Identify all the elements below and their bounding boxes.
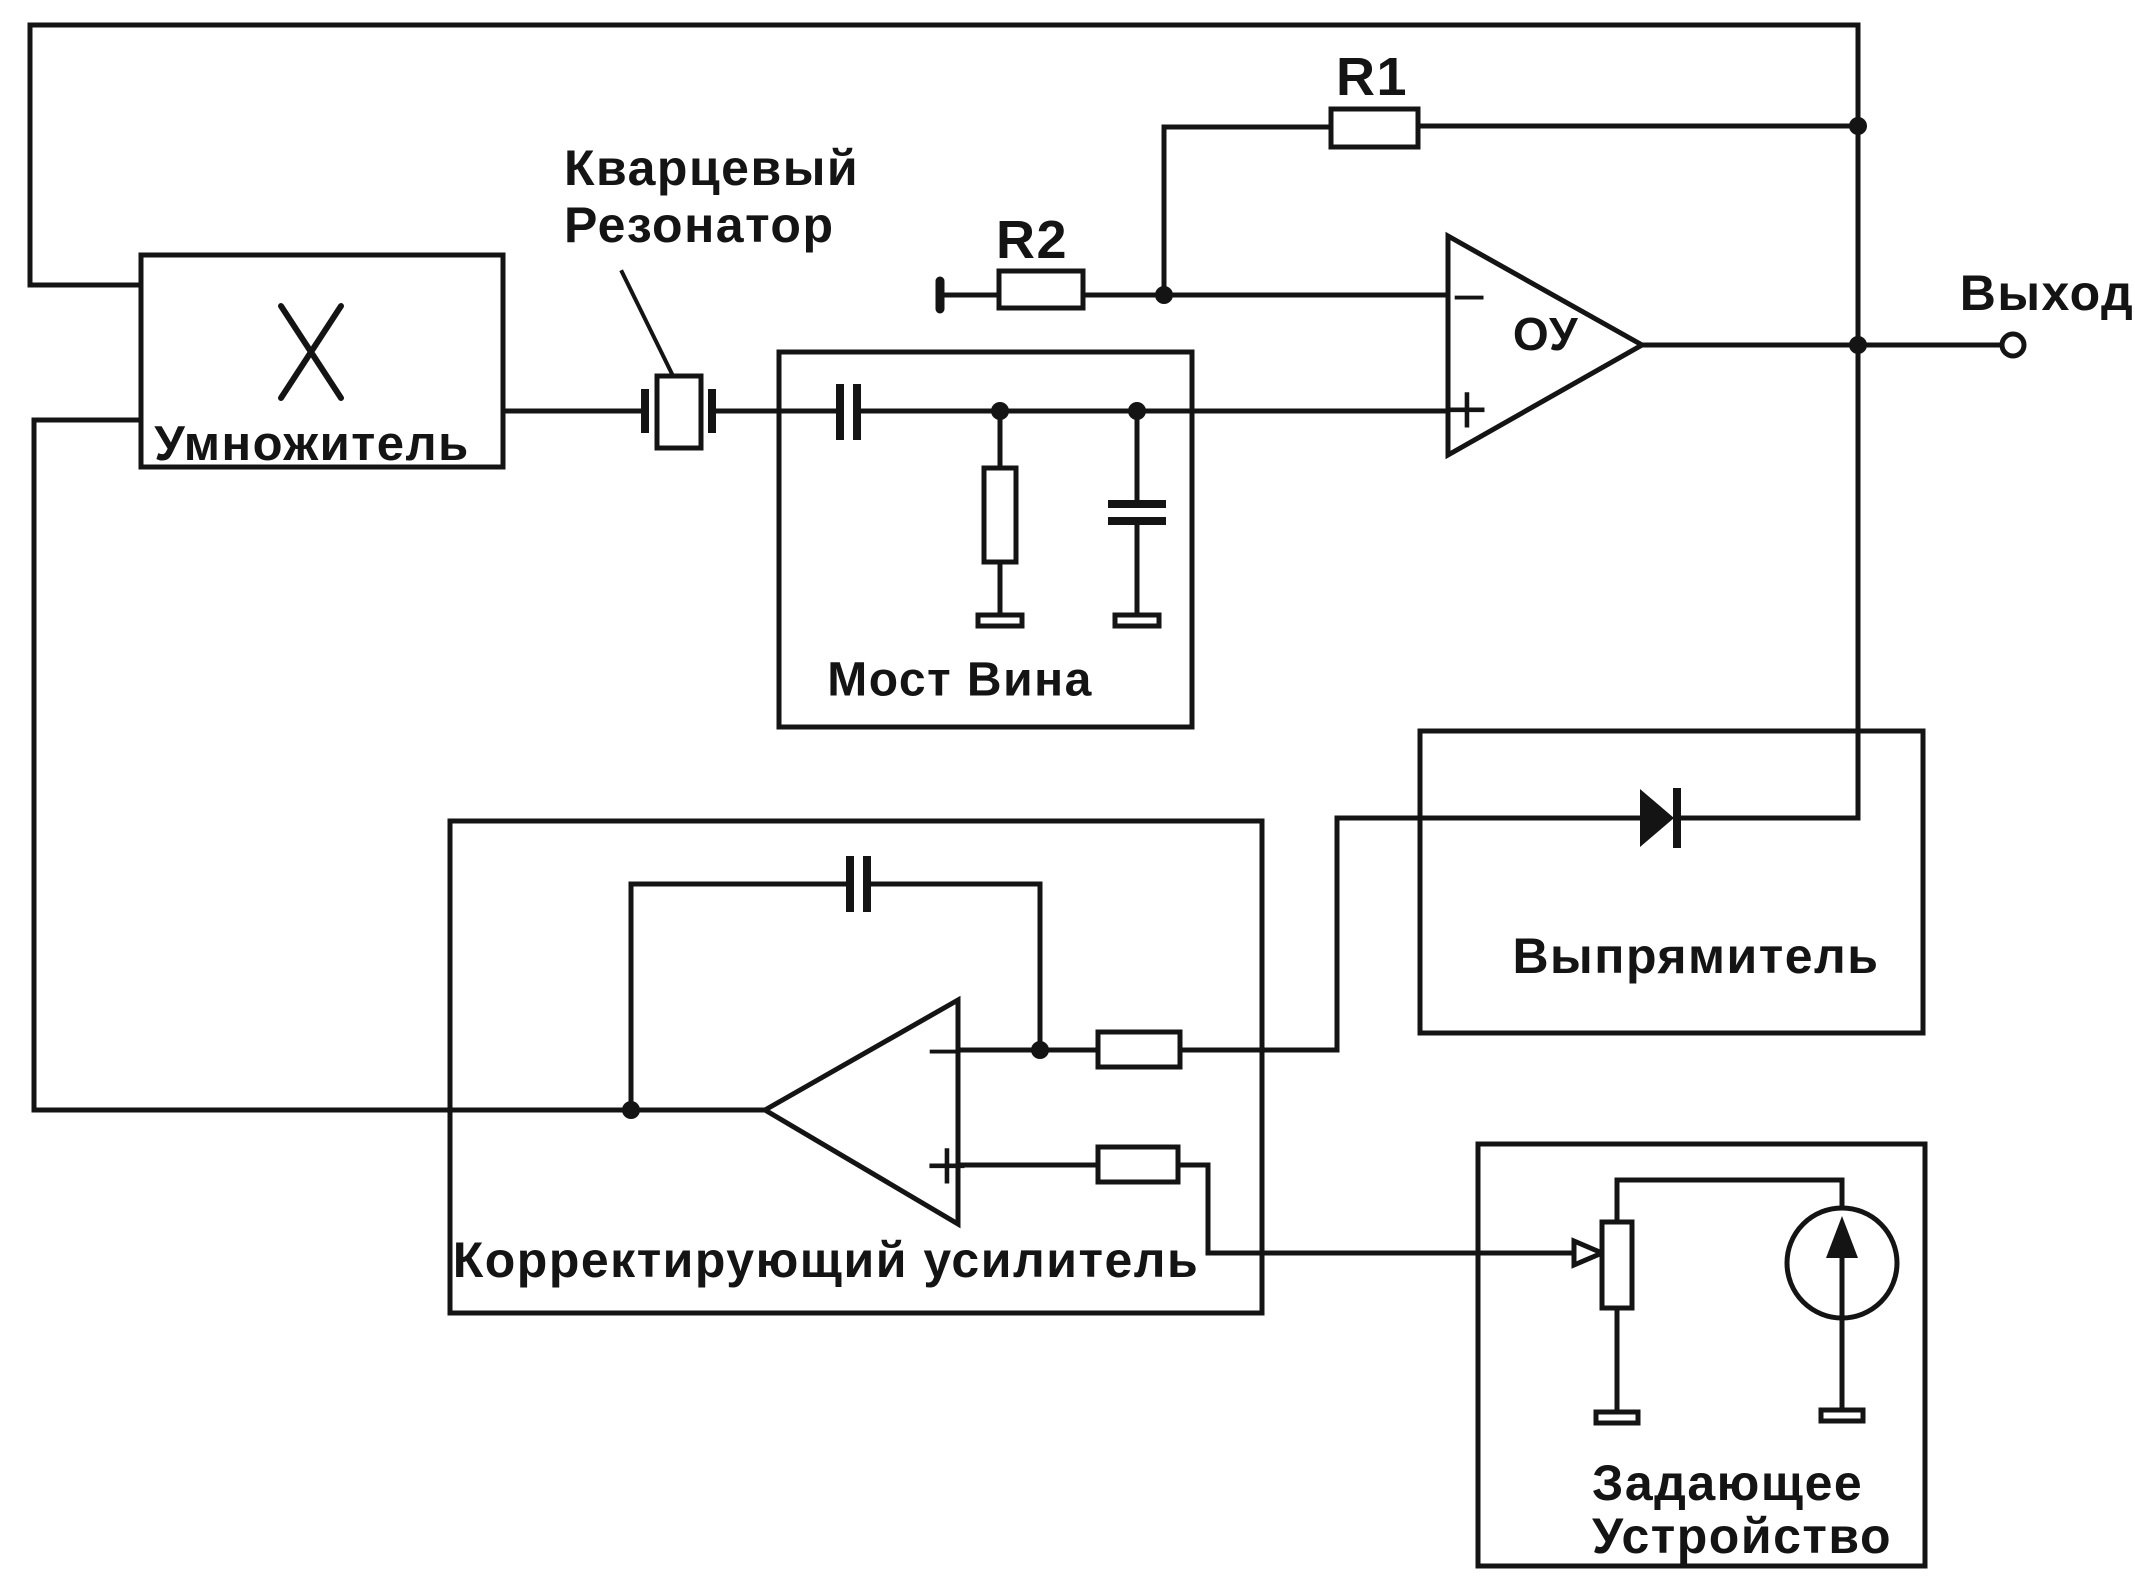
rectifier-label: Выпрямитель bbox=[1512, 928, 1879, 984]
main-opamp: − + ОУ bbox=[1444, 236, 1642, 455]
wire-corr-to-setting-device bbox=[1178, 1165, 1574, 1253]
quartz-label-line2: Резонатор bbox=[564, 197, 834, 253]
ground-icon bbox=[1821, 1410, 1863, 1421]
wire-corr-cap-left bbox=[631, 884, 850, 1110]
output-terminal-icon bbox=[2002, 334, 2024, 356]
left-feedback-wire bbox=[34, 420, 765, 1110]
opamp-plus-sign: + bbox=[1444, 377, 1491, 442]
wien-bridge-block: Мост Вина bbox=[779, 352, 1448, 727]
schematic-page: Умножитель Кварцевый Резонатор Мост Вина bbox=[0, 0, 2135, 1583]
junction-dot bbox=[622, 1101, 640, 1119]
junction-dot bbox=[1849, 117, 1867, 135]
corr-noninverting-resistor-icon bbox=[1098, 1147, 1178, 1182]
corr-opamp-minus-sign: − bbox=[925, 1023, 964, 1077]
corr-inverting-resistor-icon bbox=[1098, 1032, 1180, 1067]
rectifier-block: Выпрямитель bbox=[1337, 731, 1923, 1050]
quartz-label-line1: Кварцевый bbox=[564, 140, 859, 196]
potentiometer-icon bbox=[1602, 1222, 1632, 1308]
setting-device-label-line2: Устройство bbox=[1592, 1508, 1892, 1564]
corr-opamp-plus-sign: + bbox=[924, 1133, 971, 1198]
junction-dot bbox=[1849, 336, 1867, 354]
current-source-arrow-icon bbox=[1826, 1216, 1858, 1258]
diode-icon bbox=[1640, 789, 1674, 847]
setting-device-block: Задающее Устройство bbox=[1478, 1144, 1925, 1566]
r1-resistor-icon bbox=[1331, 109, 1418, 147]
quartz-resonator: Кварцевый Резонатор bbox=[503, 140, 859, 448]
multiplier-block: Умножитель bbox=[141, 255, 503, 471]
resistor-r1: R1 bbox=[1164, 47, 1858, 295]
quartz-crystal-icon bbox=[657, 376, 701, 448]
multiplier-label: Умножитель bbox=[154, 417, 470, 471]
r2-resistor-icon bbox=[999, 271, 1083, 308]
ground-icon bbox=[1115, 615, 1159, 626]
junction-dot bbox=[1031, 1041, 1049, 1059]
rectifier-box bbox=[1420, 731, 1923, 1033]
junction-dot bbox=[991, 402, 1009, 420]
junction-dot bbox=[1128, 402, 1146, 420]
opamp-label: ОУ bbox=[1513, 308, 1579, 360]
correcting-amplifier-label: Корректирующий усилитель bbox=[453, 1232, 1200, 1288]
ground-icon bbox=[978, 615, 1022, 626]
circuit-diagram: Умножитель Кварцевый Резонатор Мост Вина bbox=[0, 0, 2135, 1583]
shunt-resistor-icon bbox=[984, 468, 1016, 562]
output-node: Выход bbox=[1642, 265, 2134, 356]
wire-pot-to-source bbox=[1617, 1180, 1842, 1222]
setting-device-label-line1: Задающее bbox=[1592, 1455, 1863, 1511]
wire-r1-left bbox=[1164, 127, 1331, 295]
resistor-r2: R2 bbox=[940, 210, 1448, 309]
output-label: Выход bbox=[1960, 265, 2135, 321]
wien-bridge-label: Мост Вина bbox=[827, 654, 1093, 707]
correcting-amplifier-block: − + Корректирующий усилитель bbox=[450, 821, 1602, 1313]
ground-icon bbox=[1596, 1412, 1638, 1423]
wiper-arrow-icon bbox=[1574, 1241, 1602, 1265]
resonator-callout-line bbox=[622, 272, 673, 376]
lower-feedback-loop bbox=[34, 420, 765, 1110]
r1-label: R1 bbox=[1336, 47, 1408, 107]
opamp-minus-sign: − bbox=[1450, 269, 1489, 323]
junction-dot bbox=[1155, 286, 1173, 304]
r2-label: R2 bbox=[996, 210, 1068, 270]
